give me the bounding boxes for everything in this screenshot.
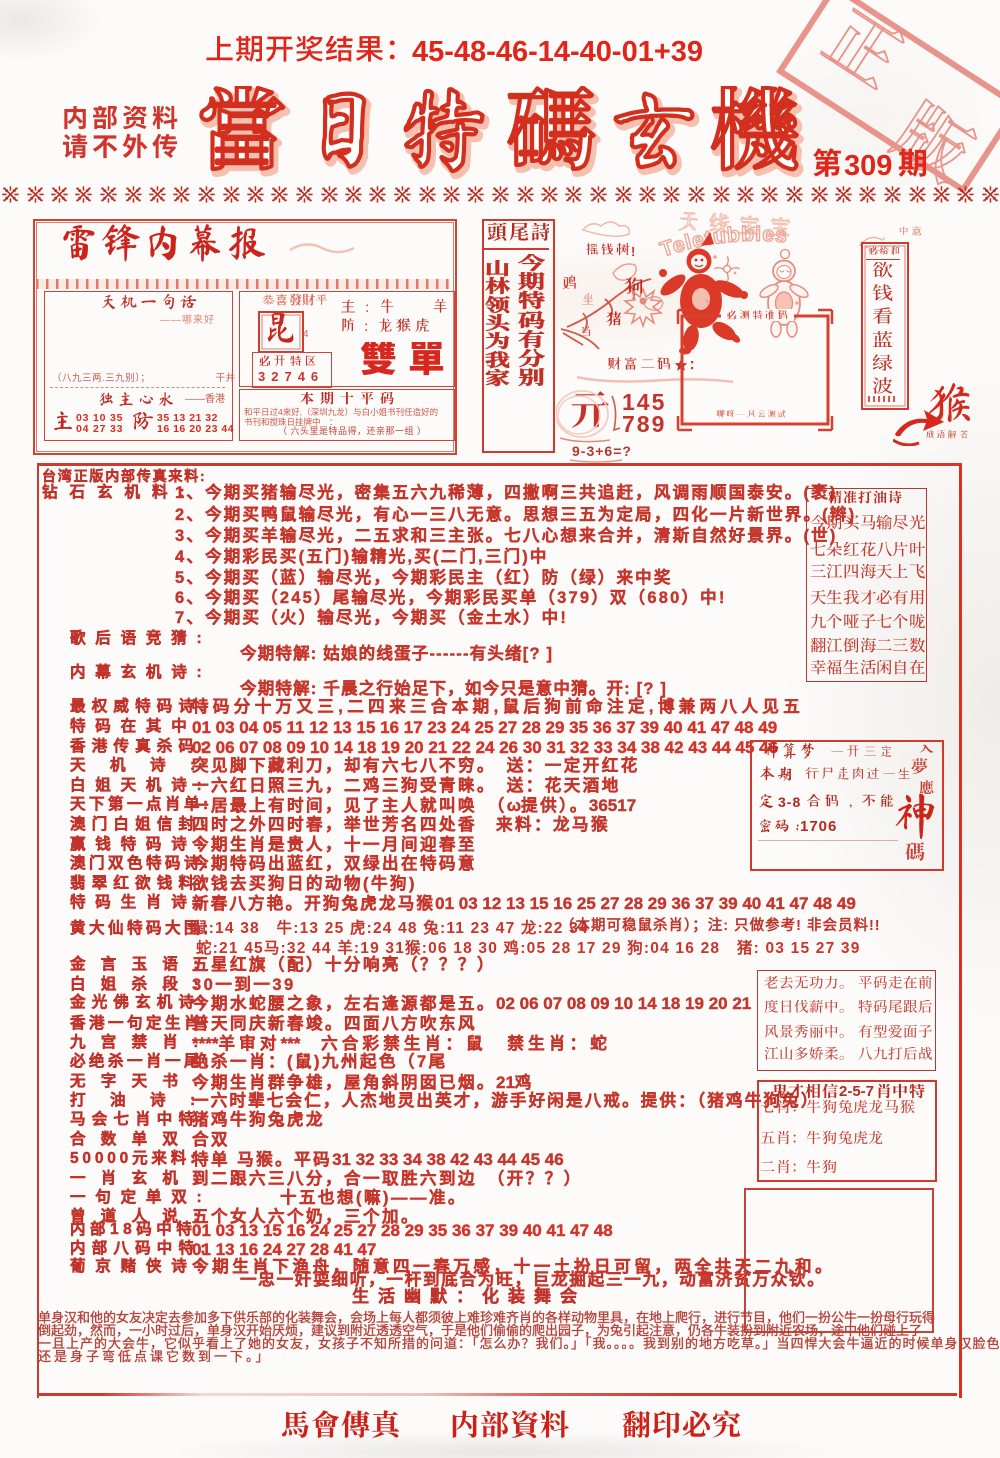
- svg-text:789: 789: [622, 411, 666, 437]
- svg-text:309: 309: [844, 150, 892, 182]
- svg-text:9-3+6=?: 9-3+6=?: [572, 443, 632, 459]
- svg-text:Teletubbies: Teletubbies: [657, 223, 789, 262]
- svg-text:!: !: [631, 244, 635, 259]
